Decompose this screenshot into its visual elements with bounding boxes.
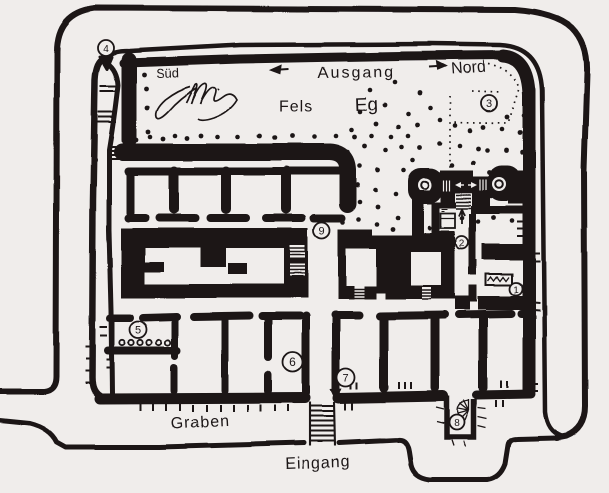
svg-text:7: 7 <box>343 372 349 384</box>
svg-text:1: 1 <box>513 285 519 296</box>
svg-text:Süd: Süd <box>156 65 180 81</box>
svg-text:8: 8 <box>454 418 460 429</box>
svg-text:Nord: Nord <box>450 59 486 78</box>
svg-text:5: 5 <box>135 325 141 337</box>
svg-text:Eingang: Eingang <box>285 454 351 473</box>
svg-text:4: 4 <box>103 44 109 55</box>
svg-text:Ausgang: Ausgang <box>318 64 395 82</box>
svg-text:9: 9 <box>319 225 325 237</box>
svg-text:3: 3 <box>486 98 492 110</box>
svg-text:Graben: Graben <box>170 413 230 433</box>
svg-text:2: 2 <box>459 239 465 250</box>
svg-text:6: 6 <box>290 355 297 369</box>
svg-text:Fels: Fels <box>279 99 313 116</box>
svg-text:Eg: Eg <box>354 94 378 116</box>
